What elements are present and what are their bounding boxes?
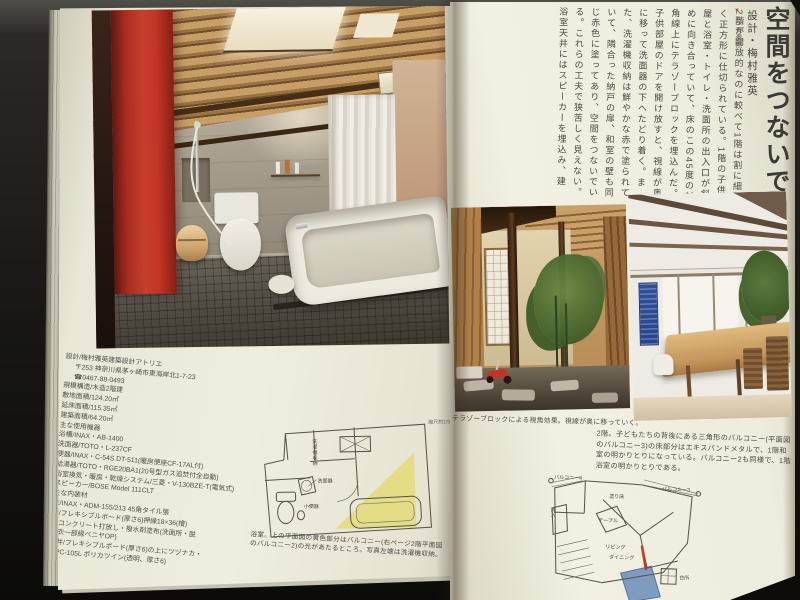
slatted-chair [743,348,763,389]
step-stone [456,366,483,379]
second-floor-plan: バルコニー4 バルコニー3 塗り床 テーブル リビング ダイニング 台所 押入 [541,467,716,600]
stone-paver [591,392,617,403]
bamboo-plant [532,254,604,345]
book-photo-scene: 設計/梅村雅英建築設計アトリエ 〒253 神奈川県茅ヶ崎市東海岸北1-7-23 … [0,0,800,600]
closet-label: 押入 [549,507,556,518]
basin-label: 洗面器 [317,477,332,484]
painted-floor-label: 塗り床 [609,493,624,501]
plank-wall-right [603,216,629,384]
triangle-marker-icon: ▼ [734,8,740,15]
table-label: テーブル [598,517,618,525]
right-page: 2階が開放的なのに較べて1階は割に細かく正方形に仕切られている。1階の子供部屋と… [450,2,795,600]
urinal-label: 小便器 [304,503,319,510]
kitchen-label: 台所 [679,574,689,581]
plank-wall-left [451,207,485,387]
slatted-chair [766,336,789,391]
article-body-text: 2階が開放的なのに較べて1階は割に細かく正方形に仕切られている。1階の子供部屋と… [553,7,748,208]
dining-room-photo [628,191,791,421]
balcony3-label: バルコニー3 [662,487,690,494]
balcony4-label: バルコニー4 [554,475,582,482]
left-page: 設計/梅村雅英建築設計アトリエ 〒253 神奈川県茅ヶ崎市東海岸北1-7-23 … [58,6,450,590]
living-label: リビング [605,543,625,551]
page-reference: ▼ 40頁参照 [731,8,743,49]
bathroom-photo [92,6,450,349]
dining-label: ダイニング [609,554,634,562]
shower-hose [92,6,450,349]
reference-text: 40頁参照 [732,17,742,49]
washer-storage-label: 洗濯機収納 [311,439,318,467]
white-chair [653,354,674,375]
second-floor-plan-drawing: バルコニー4 バルコニー3 塗り床 テーブル リビング ダイニング 台所 [541,467,716,600]
blue-panel [638,282,658,346]
article-title: 空間をつないで [758,6,794,195]
stone-paver [502,389,535,401]
indoor-plant [740,250,791,324]
wood-floor [633,394,792,420]
courtyard-photo [451,204,630,412]
